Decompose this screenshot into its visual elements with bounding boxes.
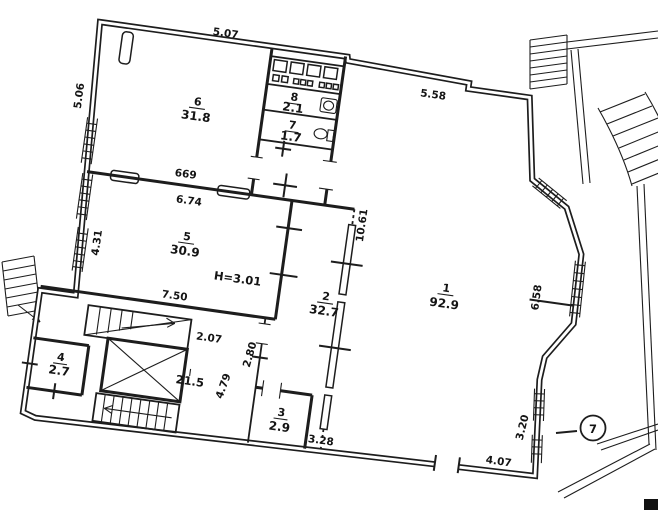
- scan-corner-mark: [644, 499, 658, 510]
- room-3-area: 2.9: [268, 418, 291, 435]
- axis-marker-label: 7: [589, 422, 597, 436]
- room-4-area: 2.7: [48, 362, 71, 379]
- room-7-area: 1.7: [279, 128, 302, 145]
- floor-plan-page: 7: [0, 0, 658, 510]
- room-8-area: 2.1: [281, 99, 304, 116]
- floor-plan-canvas: 7: [0, 0, 658, 510]
